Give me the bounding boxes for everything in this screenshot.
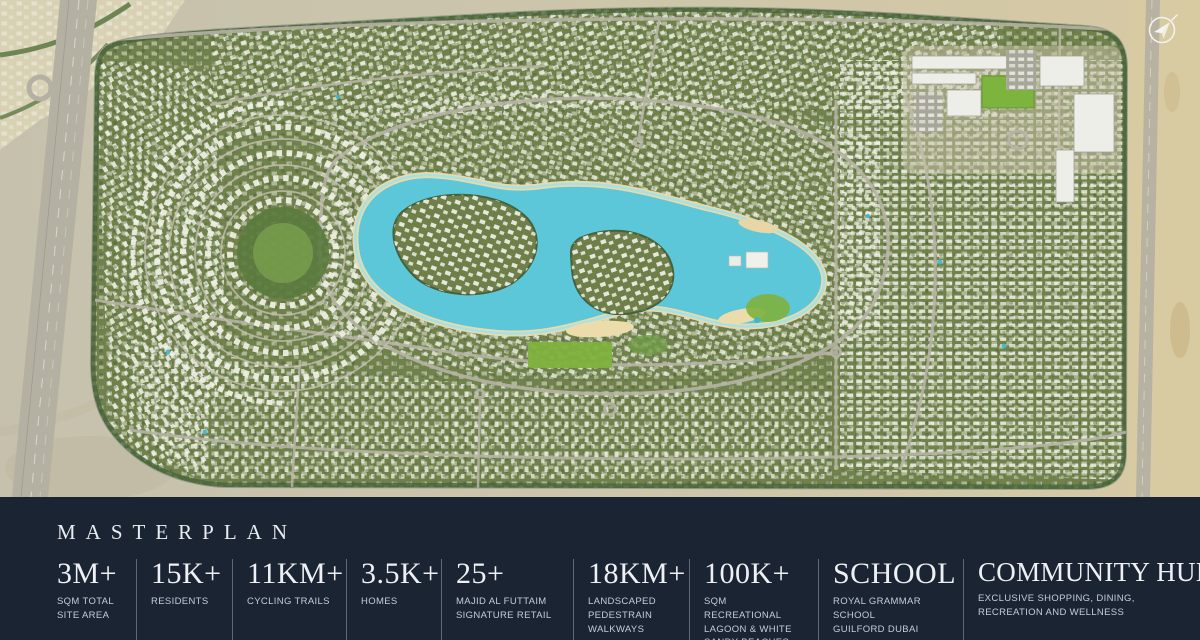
stat-cycling-trails: 11KM+ CYCLING TRAILS (247, 559, 347, 640)
development-area (88, 0, 1133, 497)
desert-right-edge (1130, 0, 1200, 497)
stat-value: SCHOOL (833, 559, 949, 589)
stat-label: SQM TOTAL SITE AREA (57, 595, 115, 623)
stat-residents: 15K+ RESIDENTS (151, 559, 233, 640)
stat-label: EXCLUSIVE SHOPPING, DINING, RECREATION A… (978, 592, 1148, 620)
masterplan-info-panel: MASTERPLAN 3M+ SQM TOTAL SITE AREA 15K+ … (0, 497, 1200, 640)
stat-label: SQM RECREATIONAL LAGOON & WHITE SANDY BE… (704, 595, 800, 640)
masterplan-map-container (0, 0, 1200, 497)
stat-site-area: 3M+ SQM TOTAL SITE AREA (57, 559, 137, 640)
masterplan-page: MASTERPLAN 3M+ SQM TOTAL SITE AREA 15K+ … (0, 0, 1200, 640)
stat-label: CYCLING TRAILS (247, 595, 332, 609)
stat-lagoon: 100K+ SQM RECREATIONAL LAGOON & WHITE SA… (704, 559, 819, 640)
stat-label: LANDSCAPED PEDESTRAIN WALKWAYS (588, 595, 652, 636)
stat-label: RESIDENTS (151, 595, 218, 609)
stat-value: 100K+ (704, 559, 804, 589)
stat-value: 15K+ (151, 559, 218, 589)
stat-homes: 3.5K+ HOMES (361, 559, 442, 640)
stat-label: ROYAL GRAMMAR SCHOOL GUILFORD DUBAI (833, 595, 923, 636)
stat-label: MAJID AL FUTTAIM SIGNATURE RETAIL (456, 595, 552, 623)
stat-community-hub: COMMUNITY HUB EXCLUSIVE SHOPPING, DINING… (978, 559, 1187, 640)
page-title: MASTERPLAN (57, 497, 1200, 543)
stat-school: SCHOOL ROYAL GRAMMAR SCHOOL GUILFORD DUB… (833, 559, 964, 640)
stat-value: 3.5K+ (361, 559, 427, 589)
stat-walkways: 18KM+ LANDSCAPED PEDESTRAIN WALKWAYS (588, 559, 690, 640)
stat-label: HOMES (361, 595, 427, 609)
masterplan-aerial-map (0, 0, 1200, 497)
stat-value: 3M+ (57, 559, 122, 589)
stat-value: 18KM+ (588, 559, 675, 589)
stat-value: COMMUNITY HUB (978, 559, 1173, 586)
stat-value: 11KM+ (247, 559, 332, 589)
stat-value: 25+ (456, 559, 559, 589)
stat-retail: 25+ MAJID AL FUTTAIM SIGNATURE RETAIL (456, 559, 574, 640)
stats-row: 3M+ SQM TOTAL SITE AREA 15K+ RESIDENTS 1… (57, 559, 1200, 640)
